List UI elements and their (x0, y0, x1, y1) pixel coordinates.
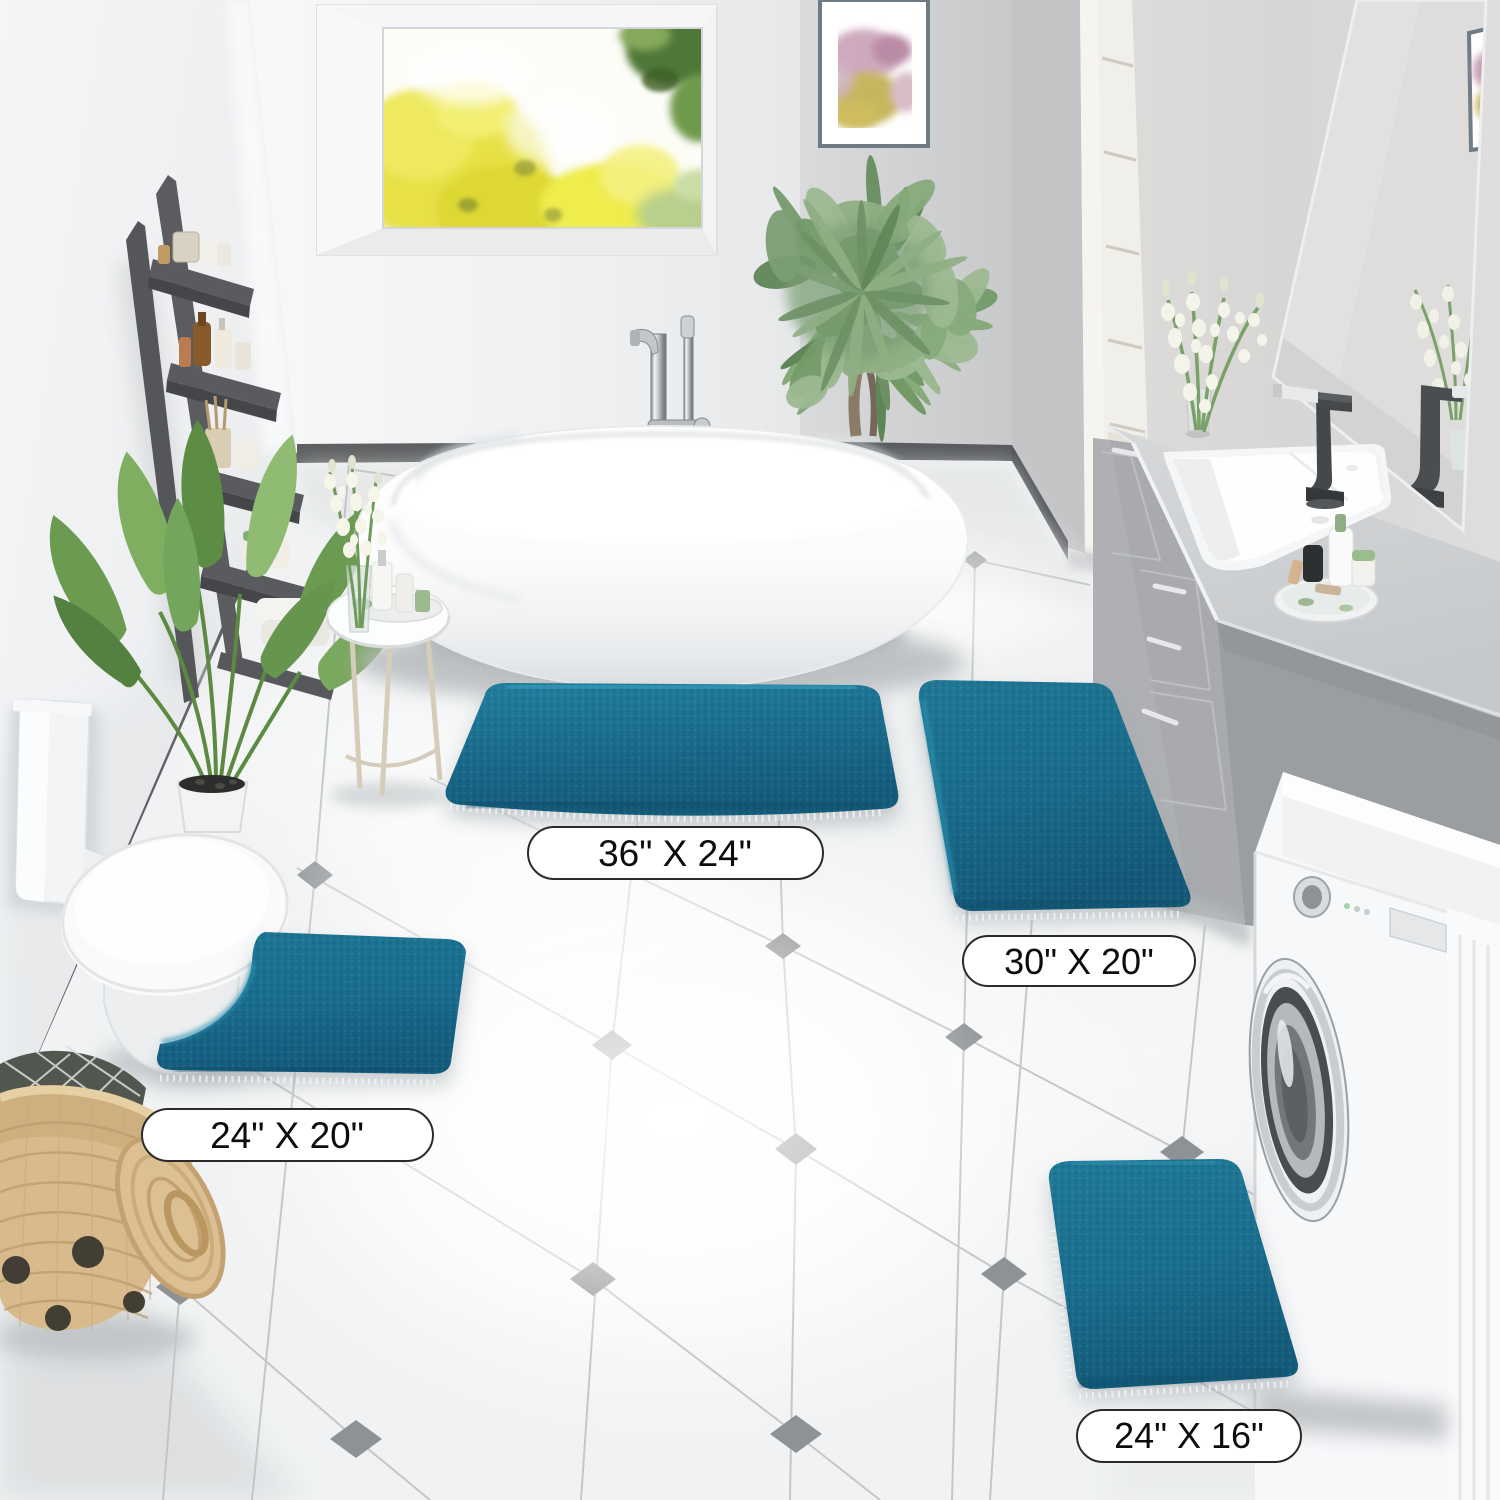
svg-text:30" X 20": 30" X 20" (1004, 941, 1154, 982)
svg-text:36" X 24": 36" X 24" (598, 833, 752, 874)
svg-text:24" X 20": 24" X 20" (210, 1115, 364, 1156)
svg-text:24" X 16": 24" X 16" (1114, 1415, 1264, 1456)
